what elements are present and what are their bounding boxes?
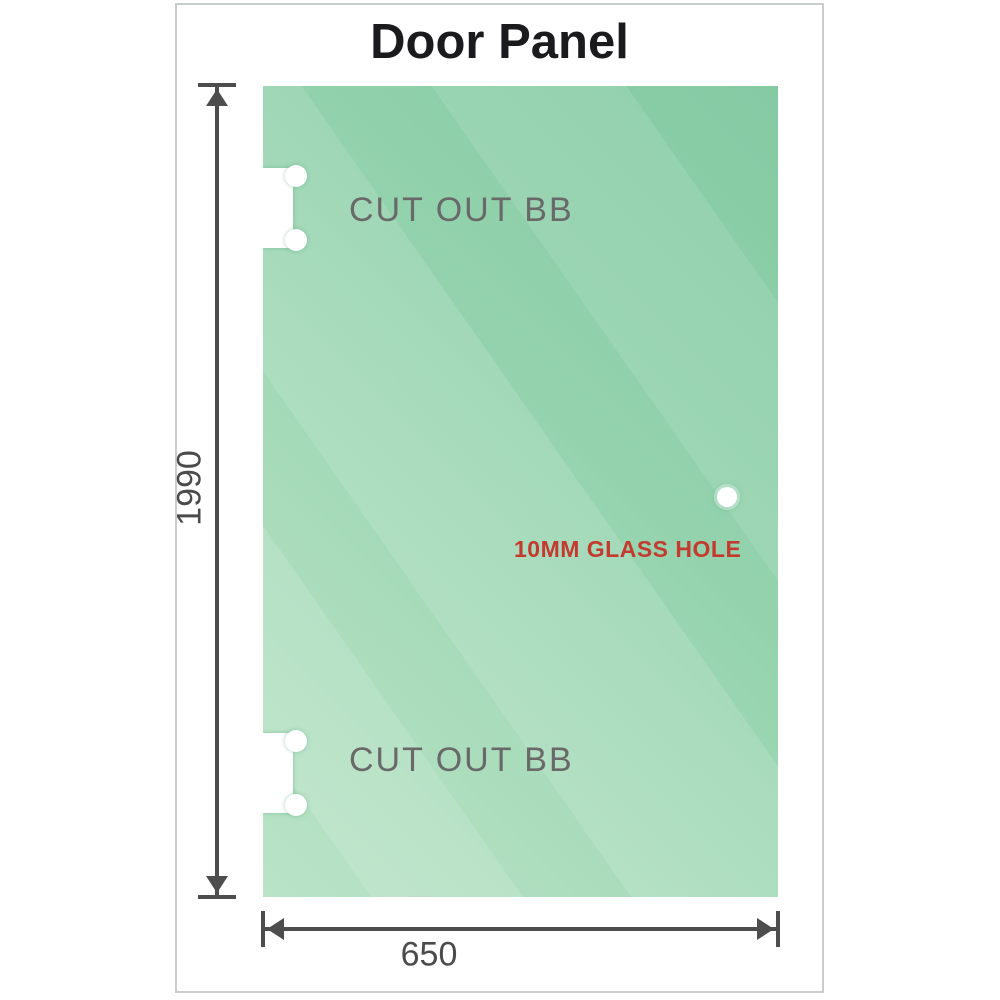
cutout-bottom — [263, 730, 307, 816]
arrow-down-icon — [206, 876, 228, 893]
cutout-bottom-label: CUT OUT BB — [349, 741, 574, 780]
dimension-cap-bottom — [198, 895, 236, 899]
glass-hole-icon — [717, 487, 737, 507]
cutout-bottom-edge-mask — [257, 733, 265, 813]
cutout-top-lobe-lower — [285, 229, 307, 251]
cutout-bottom-lobe-upper — [285, 730, 307, 752]
dimension-height-label: 1990 — [171, 450, 210, 526]
page-title: Door Panel — [175, 14, 824, 70]
cutout-bottom-lobe-lower — [285, 794, 307, 816]
door-panel-diagram: Door Panel CUT OUT BB CUT OUT BB 10MM GL… — [0, 0, 1000, 1000]
arrow-right-icon — [757, 918, 774, 940]
dimension-cap-right — [776, 911, 780, 947]
cutout-top — [263, 165, 307, 251]
dimension-width-label: 650 — [401, 936, 458, 975]
glass-hole-label: 10MM GLASS HOLE — [514, 536, 741, 563]
vertical-dimension-line — [215, 87, 219, 895]
cutout-top-lobe-upper — [285, 165, 307, 187]
horizontal-dimension — [261, 911, 780, 947]
cutout-top-edge-mask — [257, 168, 265, 248]
cutout-top-label: CUT OUT BB — [349, 191, 574, 230]
horizontal-dimension-line — [265, 927, 776, 931]
